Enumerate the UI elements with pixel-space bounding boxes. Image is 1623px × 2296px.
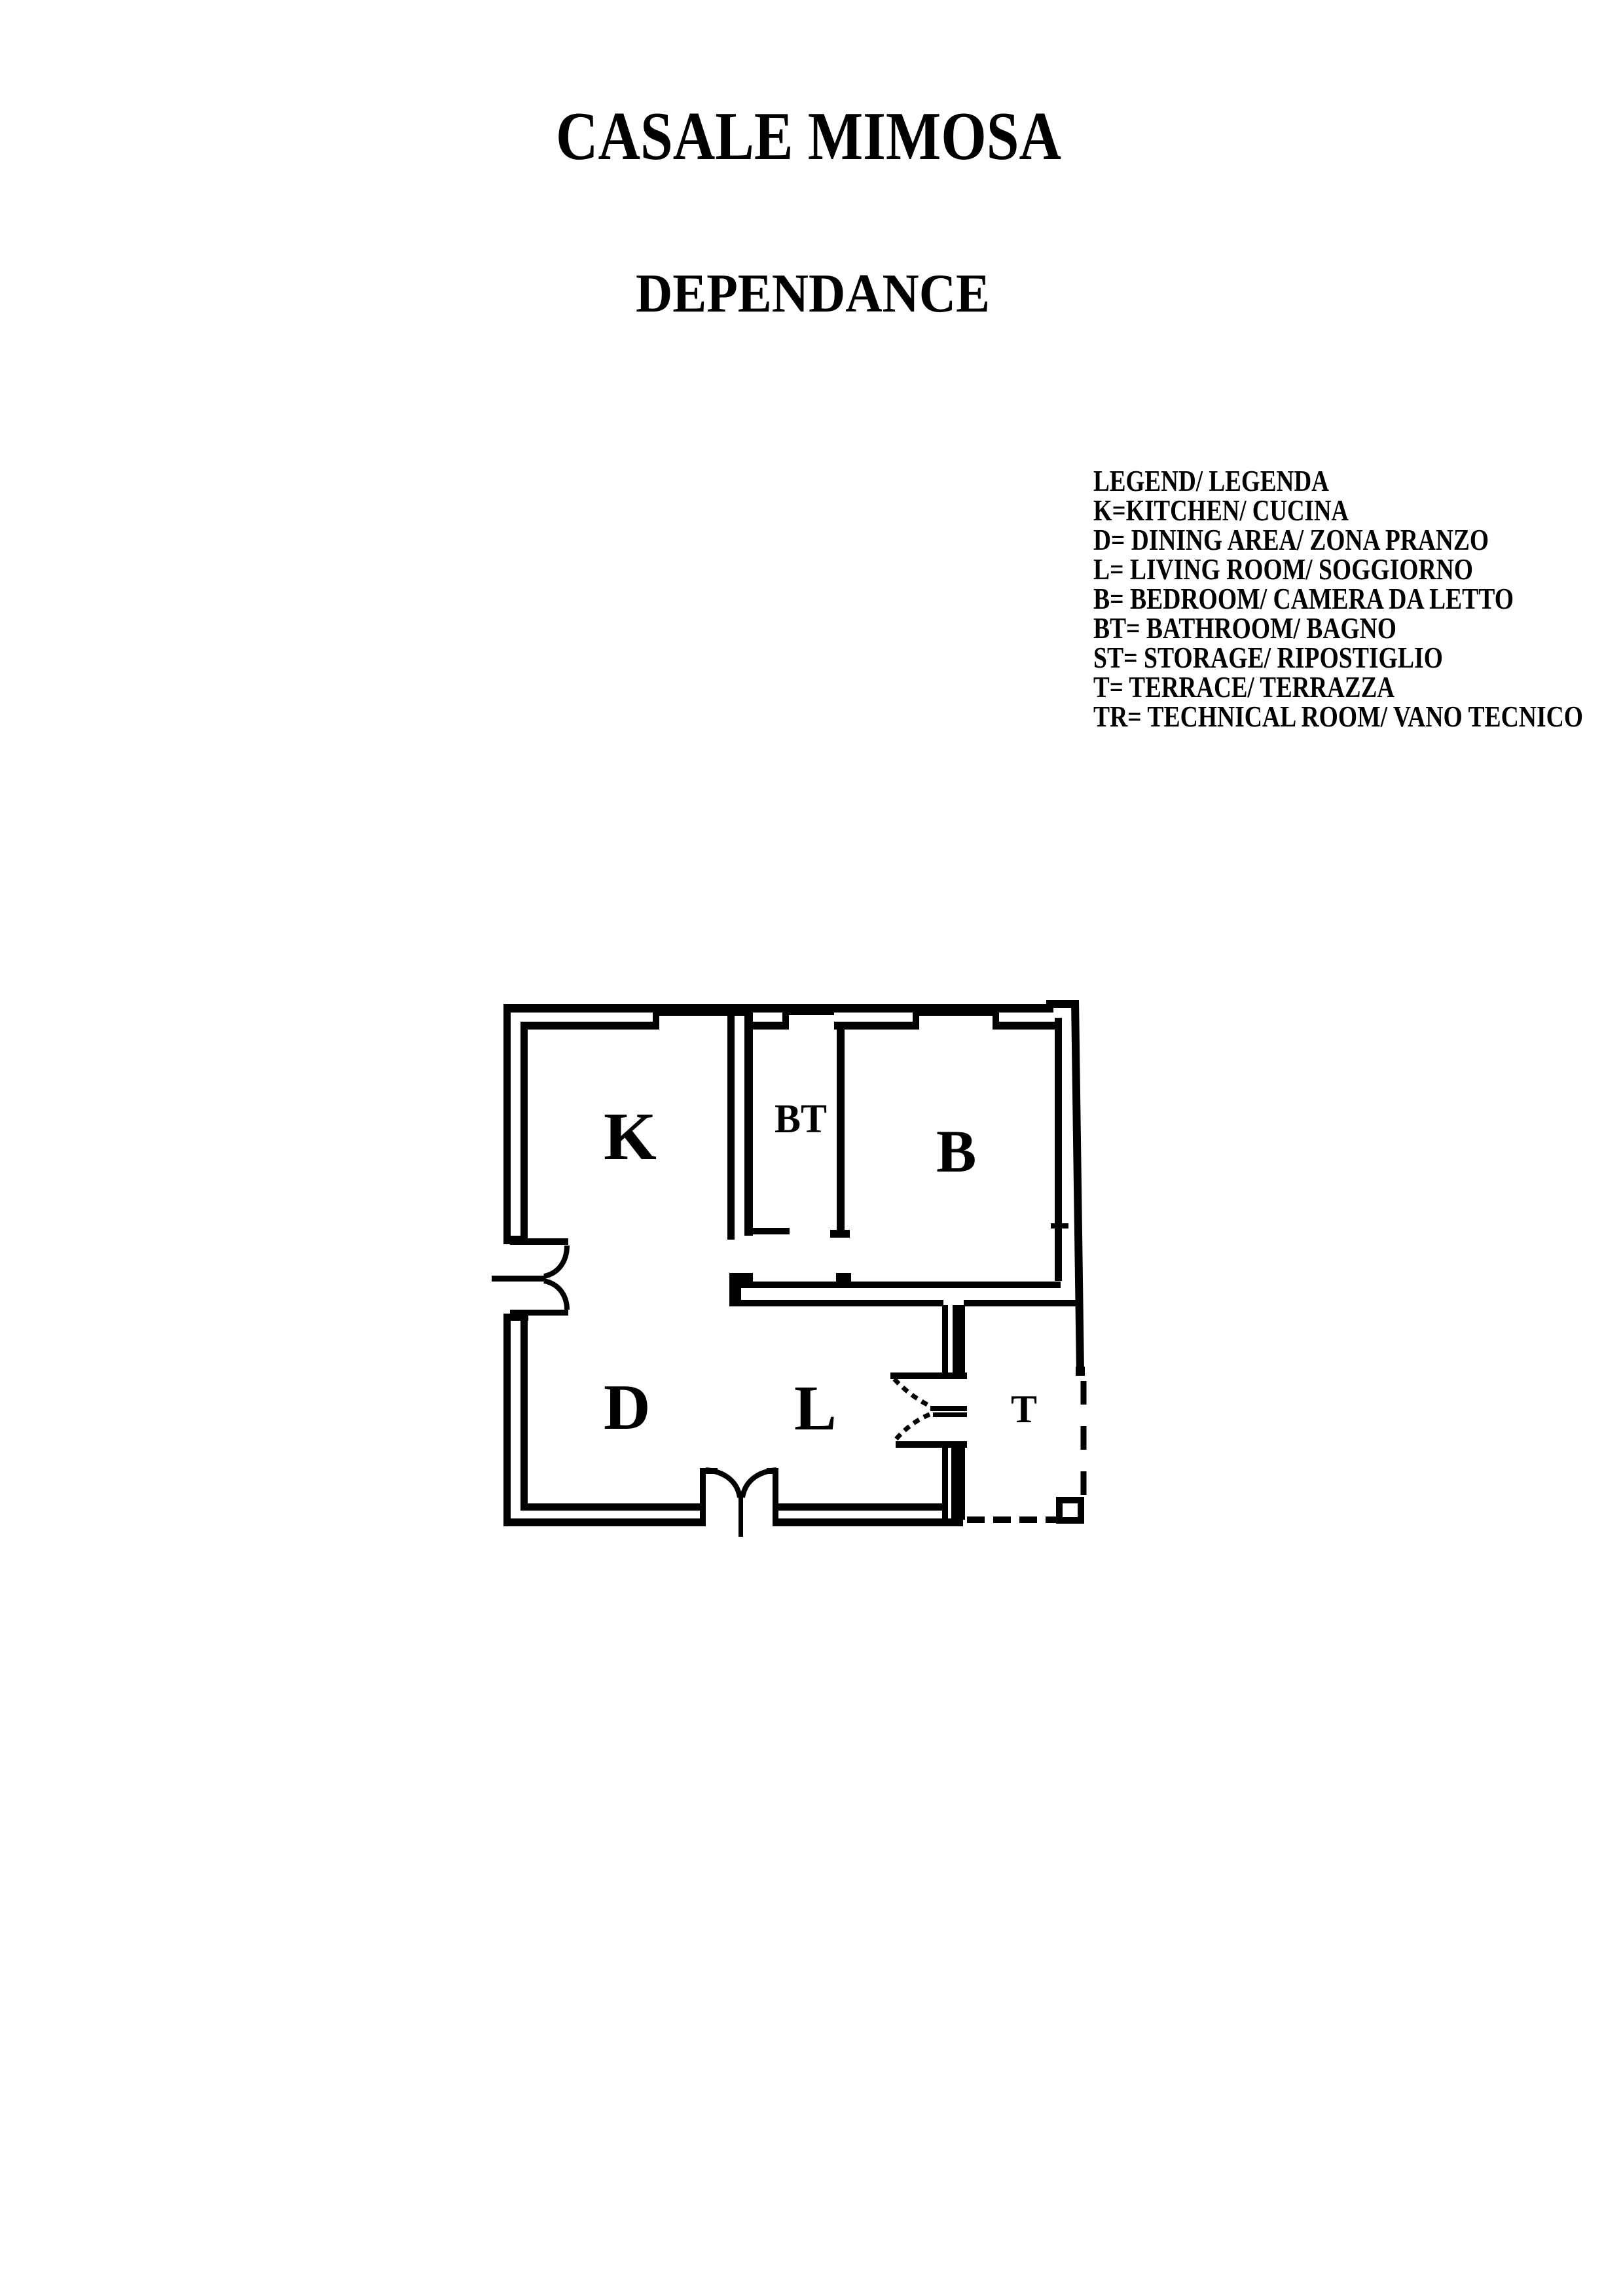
svg-text:B= BEDROOM/ CAMERA DA LETTO: B= BEDROOM/ CAMERA DA LETTO (1093, 582, 1514, 615)
svg-text:K: K (604, 1099, 657, 1174)
svg-text:T= TERRACE/ TERRAZZA: T= TERRACE/ TERRAZZA (1093, 670, 1395, 704)
svg-text:D= DINING AREA/ ZONA PRANZO: D= DINING AREA/ ZONA PRANZO (1093, 523, 1489, 556)
svg-text:DEPENDANCE: DEPENDANCE (636, 263, 990, 324)
svg-text:L= LIVING ROOM/ SOGGIORNO: L= LIVING ROOM/ SOGGIORNO (1093, 552, 1473, 586)
svg-text:TR= TECHNICAL ROOM/ VANO TECNI: TR= TECHNICAL ROOM/ VANO TECNICO (1093, 700, 1583, 733)
svg-text:L: L (794, 1373, 837, 1443)
svg-text:T: T (1011, 1388, 1037, 1431)
svg-text:B: B (936, 1118, 976, 1185)
svg-text:BT= BATHROOM/ BAGNO: BT= BATHROOM/ BAGNO (1093, 611, 1396, 645)
svg-text:BT: BT (775, 1097, 827, 1141)
svg-text:D: D (604, 1372, 651, 1443)
svg-text:LEGEND/ LEGENDA: LEGEND/ LEGENDA (1093, 464, 1329, 497)
svg-text:K=KITCHEN/ CUCINA: K=KITCHEN/ CUCINA (1093, 493, 1349, 527)
svg-text:CASALE MIMOSA: CASALE MIMOSA (556, 98, 1061, 174)
svg-text:ST= STORAGE/ RIPOSTIGLIO: ST= STORAGE/ RIPOSTIGLIO (1093, 641, 1443, 674)
